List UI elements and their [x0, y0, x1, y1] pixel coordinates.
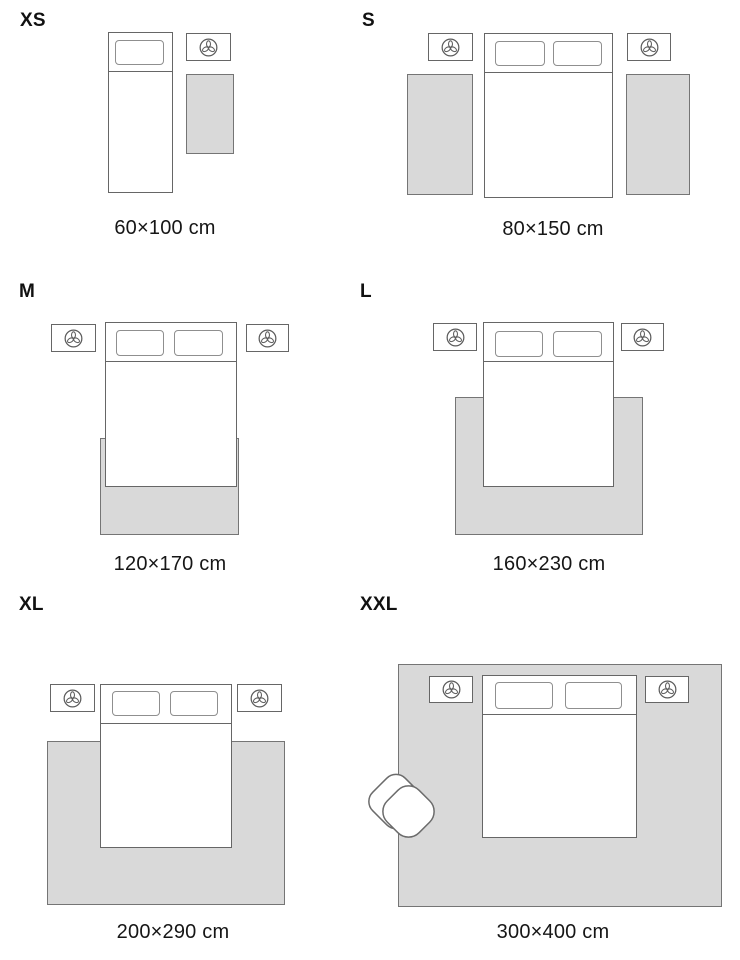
- plant-icon: [62, 327, 85, 350]
- pillow: [553, 41, 602, 66]
- dimension-caption: 160×230 cm: [449, 554, 649, 574]
- plant-icon: [61, 687, 84, 710]
- plant-icon: [440, 678, 463, 701]
- nightstand: [645, 676, 689, 703]
- bed-single: [108, 32, 173, 193]
- nightstand: [186, 33, 231, 61]
- pillow: [495, 682, 553, 709]
- dimension-caption: 200×290 cm: [73, 922, 273, 942]
- dimension-caption: 300×400 cm: [453, 922, 653, 942]
- bed-double: [484, 33, 613, 198]
- pillow: [553, 331, 602, 357]
- nightstand: [246, 324, 289, 352]
- bed-double: [100, 684, 232, 848]
- rug-runner-right: [626, 74, 690, 195]
- size-label: XL: [19, 595, 44, 614]
- pillow: [115, 40, 164, 65]
- armchair-icon: [357, 762, 447, 852]
- size-label: XXL: [360, 595, 398, 614]
- size-label: M: [19, 282, 35, 301]
- rug-runner-left: [407, 74, 473, 195]
- bed-double: [483, 322, 614, 487]
- pillow: [495, 331, 543, 357]
- nightstand: [627, 33, 671, 61]
- nightstand: [51, 324, 96, 352]
- nightstand: [237, 684, 282, 712]
- bed-headboard: [101, 685, 231, 724]
- rug-size-guide: XS 60×100 cm S 80×150 cm: [0, 0, 740, 960]
- pillow: [112, 691, 160, 716]
- pillow: [170, 691, 218, 716]
- plant-icon: [638, 36, 661, 59]
- dimension-caption: 60×100 cm: [65, 218, 265, 238]
- plant-icon: [631, 326, 654, 349]
- pillow: [565, 682, 622, 709]
- bed-headboard: [109, 33, 172, 72]
- bed-double: [482, 675, 637, 838]
- nightstand: [621, 323, 664, 351]
- size-label: S: [362, 11, 375, 30]
- dimension-caption: 120×170 cm: [70, 554, 270, 574]
- size-label: XS: [20, 11, 46, 30]
- pillow: [116, 330, 164, 356]
- plant-icon: [656, 678, 679, 701]
- plant-icon: [444, 326, 467, 349]
- plant-icon: [248, 687, 271, 710]
- bed-double: [105, 322, 237, 487]
- bed-headboard: [484, 323, 613, 362]
- dimension-caption: 80×150 cm: [453, 219, 653, 239]
- plant-icon: [439, 36, 462, 59]
- bed-headboard: [485, 34, 612, 73]
- nightstand: [429, 676, 473, 703]
- bed-headboard: [483, 676, 636, 715]
- bed-headboard: [106, 323, 236, 362]
- pillow: [174, 330, 223, 356]
- nightstand: [433, 323, 477, 351]
- nightstand: [428, 33, 473, 61]
- pillow: [495, 41, 545, 66]
- size-label: L: [360, 282, 372, 301]
- plant-icon: [256, 327, 279, 350]
- rug: [186, 74, 234, 154]
- nightstand: [50, 684, 95, 712]
- plant-icon: [197, 36, 220, 59]
